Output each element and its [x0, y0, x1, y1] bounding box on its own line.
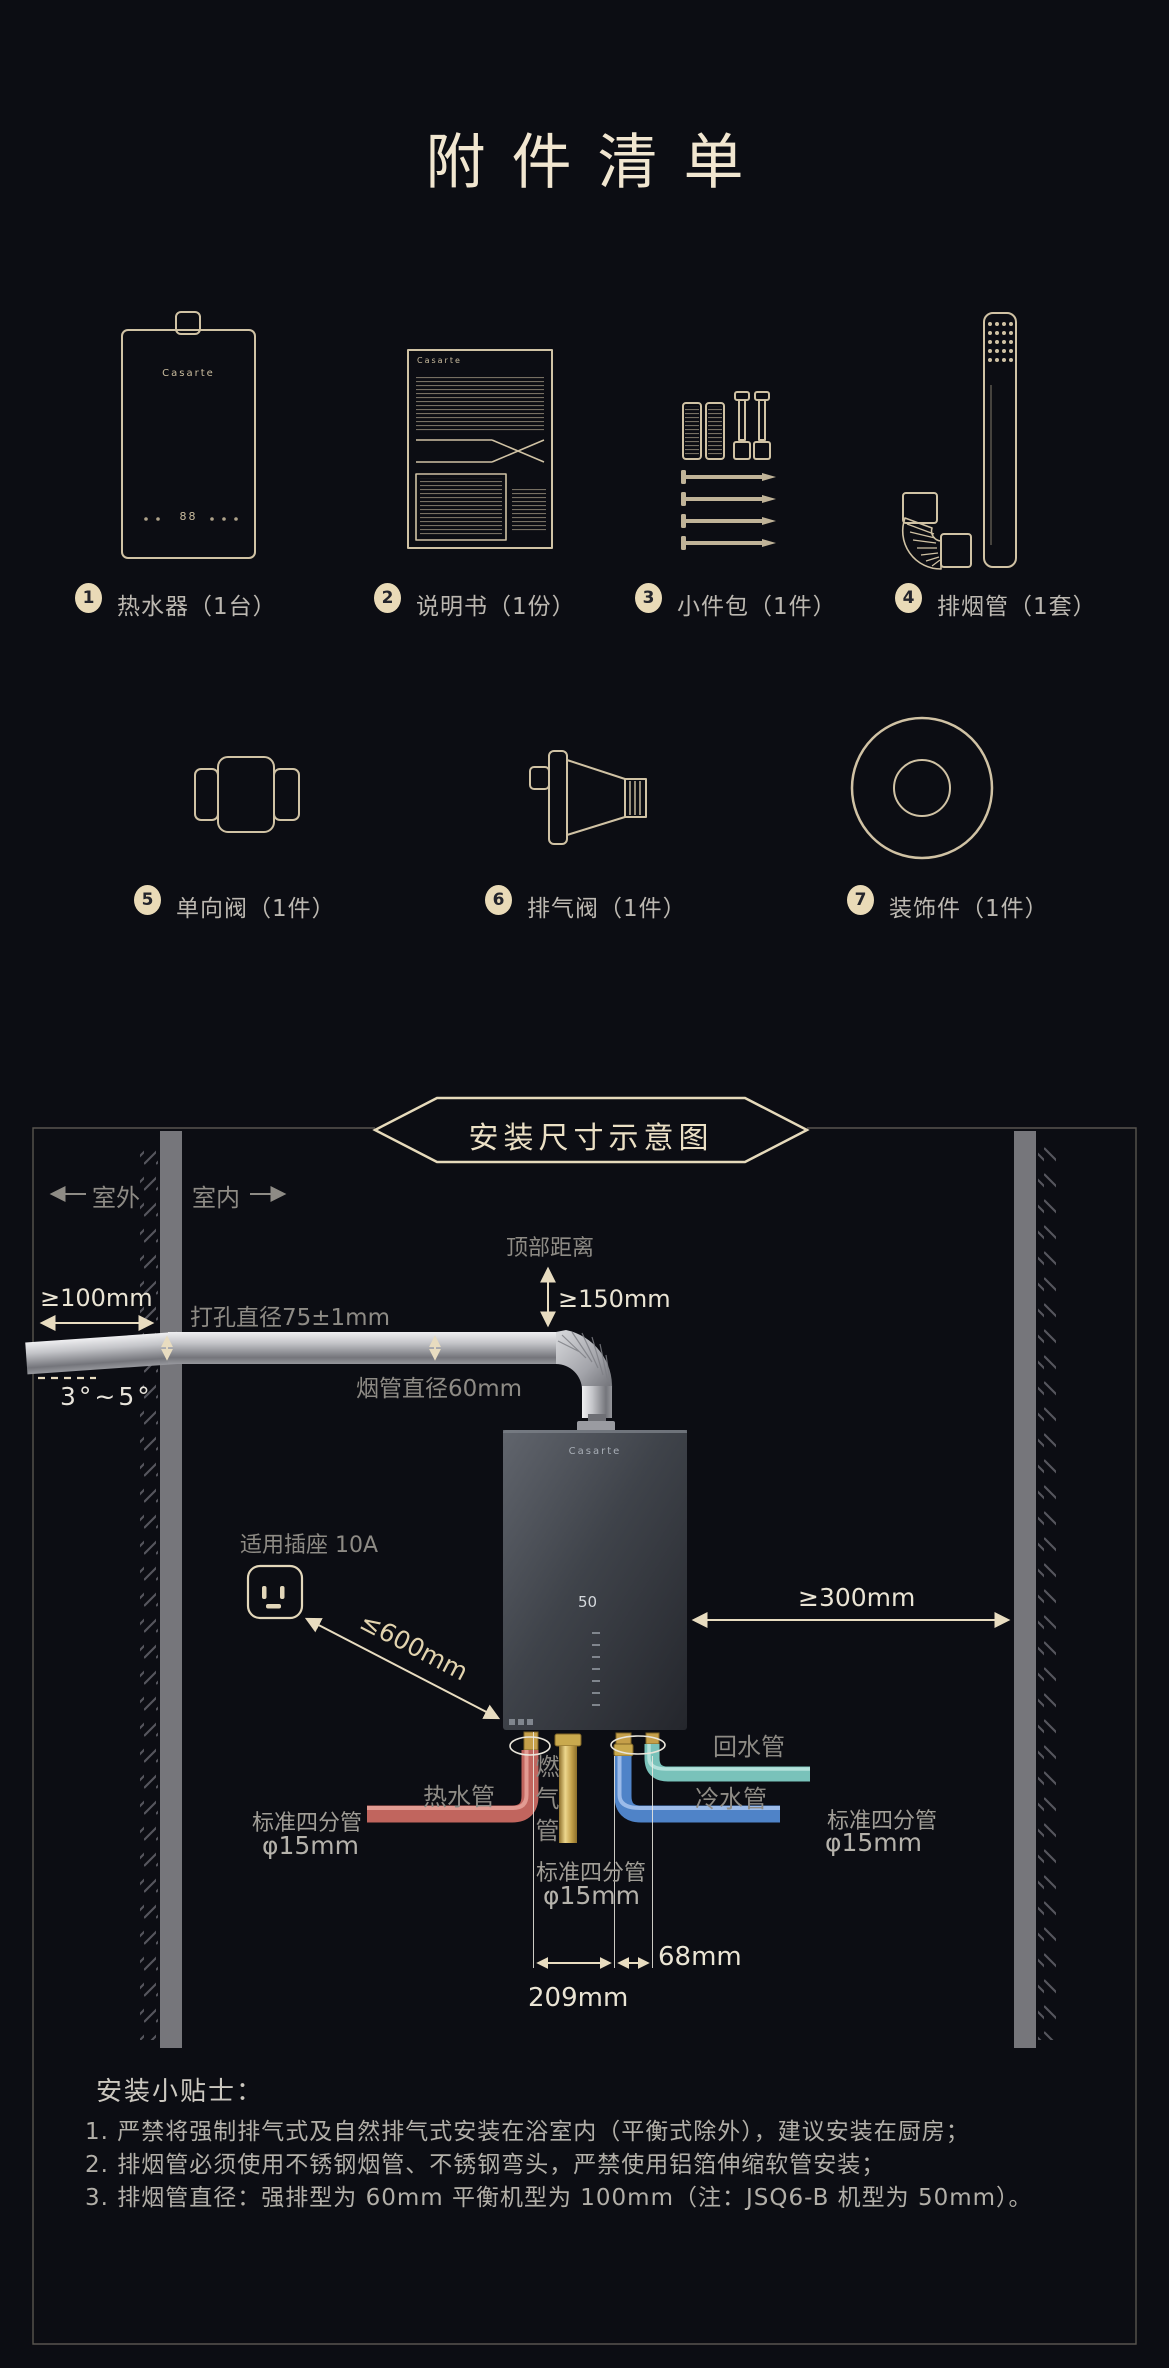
pipe-diameter-label-right: φ15mm [825, 1828, 922, 1857]
accessory-number-badge: 2 [374, 583, 401, 613]
heater-display-text: 88 [122, 510, 255, 523]
dimension-68mm-label: 68mm [658, 1942, 742, 1972]
tips-heading: 安装小贴士： [96, 2071, 264, 2108]
accessory-number-badge: 3 [635, 583, 662, 613]
gas-pipe-label: 燃气管 [528, 1754, 563, 1850]
tip-line: 1. 严禁将强制排气式及自然排气式安装在浴室内（平衡式除外），建议安装在厨房； [85, 2112, 970, 2146]
slope-angle-label: 3°~5° [60, 1382, 153, 1411]
accessory-item-label: 装饰件（1件） [889, 889, 1049, 923]
accessory-number-badge: 6 [485, 885, 512, 915]
pipe-diameter-label-left: φ15mm [262, 1831, 359, 1860]
top-distance-label: 顶部距离 [506, 1230, 594, 1262]
one-way-valve-illustration [195, 757, 299, 832]
exhaust-valve-illustration [530, 751, 646, 844]
small-parts-illustration [681, 392, 776, 550]
accessory-item-label: 小件包（1件） [677, 587, 837, 621]
heater-brand-text: Casarte [122, 368, 255, 379]
cold-water-label: 冷水管 [695, 1779, 767, 1814]
indoor-label: 室内 [192, 1178, 240, 1213]
flue-diameter-label: 烟管直径60mm [356, 1369, 522, 1403]
flue-pipe-illustration [903, 313, 1016, 569]
dimension-209mm-label: 209mm [528, 1983, 628, 2013]
diagram-water-heater [503, 1430, 687, 1730]
accessory-item-label: 单向阀（1件） [176, 889, 336, 923]
product-infographic-page: 附件清单 1 热水器（1台） 2 说明书（1份） 3 小件包（1件） 4 排烟管… [0, 0, 1169, 2368]
accessory-item-label: 排气阀（1件） [527, 889, 687, 923]
decorative-ring-illustration [852, 718, 992, 858]
accessory-number-badge: 5 [134, 885, 161, 915]
accessory-item-label: 说明书（1份） [416, 587, 576, 621]
section-banner-title: 安装尺寸示意图 [375, 1113, 807, 1157]
flue-pipe [25, 1330, 615, 1432]
hole-diameter-label: 打孔直径75±1mm [190, 1298, 390, 1332]
accessory-item-label: 热水器（1台） [117, 587, 277, 621]
tip-line: 3. 排烟管直径：强排型为 60mm 平衡机型为 100mm（注：JSQ6-B … [85, 2178, 1033, 2212]
accessory-number-badge: 1 [75, 583, 102, 613]
socket-rating-label: 适用插座 10A [240, 1527, 378, 1559]
outdoor-label: 室外 [92, 1178, 140, 1213]
side-clearance-dimension: ≥300mm [798, 1583, 915, 1612]
pipe-diameter-label-center: φ15mm [543, 1881, 640, 1910]
hot-water-label: 热水管 [423, 1777, 495, 1812]
tip-line: 2. 排烟管必须使用不锈钢烟管、不锈钢弯头，严禁使用铝箔伸缩软管安装； [85, 2145, 885, 2179]
accessory-item-label: 排烟管（1套） [937, 587, 1097, 621]
accessory-number-badge: 7 [847, 885, 874, 915]
top-clearance-dimension: ≥150mm [558, 1285, 671, 1313]
manual-illustration [408, 350, 552, 548]
return-water-label: 回水管 [713, 1727, 785, 1762]
accessory-number-badge: 4 [895, 583, 922, 613]
wall-gap-dimension: ≥100mm [40, 1284, 153, 1312]
left-wall [140, 1131, 182, 2048]
heater-temperature-display: 50 [578, 1593, 597, 1611]
right-wall [1014, 1131, 1056, 2048]
page-title: 附件清单 [0, 114, 1169, 201]
manual-brand-text: Casarte [417, 356, 462, 365]
power-socket-icon [248, 1566, 302, 1618]
diagram-heater-brand: Casarte [503, 1446, 687, 1457]
